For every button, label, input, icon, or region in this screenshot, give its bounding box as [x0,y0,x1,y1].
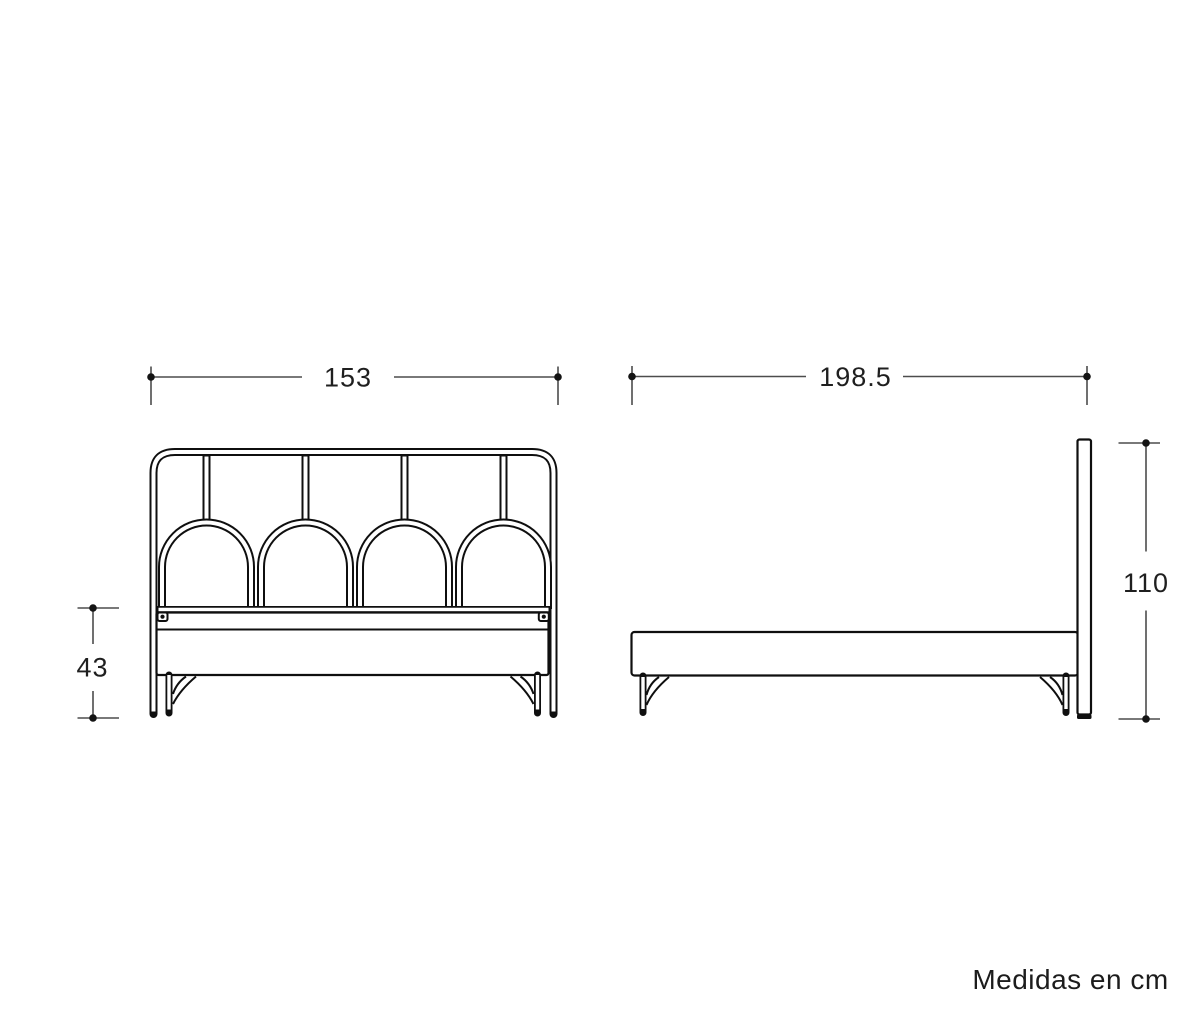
dimension-headboard-height: 110 [1119,439,1170,723]
units-note: Medidas en cm [972,964,1168,995]
headboard-side-plank [1077,440,1092,720]
screw-icon [542,615,546,619]
headboard-arches [162,523,548,610]
bed-frame-front [157,613,549,676]
side-view [632,440,1092,720]
dimension-base-height: 43 [76,604,119,722]
front-legs [169,675,538,713]
dimension-label-headboard-height: 110 [1123,568,1169,598]
side-legs [643,676,1066,713]
dimension-endpoint [554,373,562,381]
mounting-plate-left [158,613,168,622]
leg-brace [173,677,196,705]
dimension-label-base-height: 43 [76,653,108,683]
screw-icon [160,615,164,619]
plank-foot [1077,715,1092,720]
dimension-endpoint [1083,373,1091,381]
dimension-endpoint [1142,715,1150,723]
front-view [154,452,554,714]
dimension-label-front-width: 153 [324,363,372,393]
dimension-endpoint [89,714,97,722]
dimension-endpoint [628,373,636,381]
technical-drawing-canvas: 153 198.5 43 110 Medidas en cm [0,0,1200,1028]
dimension-front-width: 153 [147,363,562,406]
headboard-dividers [207,455,504,522]
dimension-endpoint [89,604,97,612]
dimension-endpoint [1142,439,1150,447]
leg-brace [1040,677,1063,705]
dimension-label-side-length: 198.5 [819,362,892,392]
mounting-plate-right [539,613,549,622]
leg-brace [647,677,670,705]
dimension-side-length: 198.5 [628,362,1091,405]
bed-dimension-diagram: 153 198.5 43 110 Medidas en cm [0,0,1200,1028]
leg-brace [511,677,534,705]
bed-frame-side [632,632,1079,676]
dimension-endpoint [147,373,155,381]
